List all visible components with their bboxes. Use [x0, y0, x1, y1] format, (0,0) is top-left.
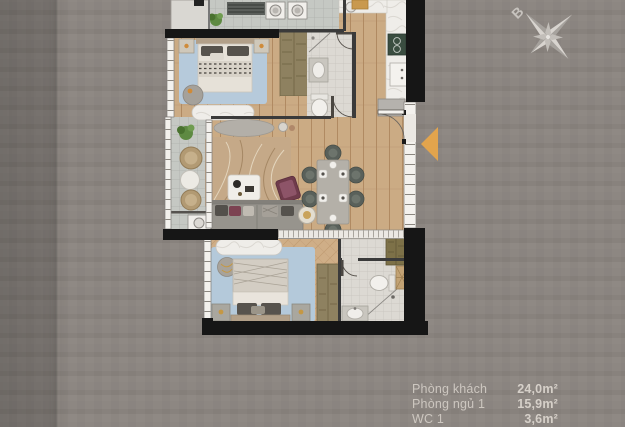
- hatch-wall: [277, 230, 405, 239]
- bed-1: [196, 38, 254, 92]
- coffee-table: [228, 175, 260, 200]
- scene-background: B Phòng khách 24,0m² Phòng ngủ 1 15,9m² …: [0, 0, 625, 420]
- legend-room-area: 15,9m²: [517, 397, 558, 412]
- area-legend: Phòng khách 24,0m² Phòng ngủ 1 15,9m² WC…: [412, 382, 558, 427]
- balcony-divider: [171, 211, 208, 214]
- legend-row: Phòng khách 24,0m²: [412, 382, 558, 397]
- bench-bedroom-2: [216, 239, 282, 255]
- runner-rug: [214, 120, 274, 137]
- pouf: [183, 85, 203, 105]
- appliance-panel: [390, 63, 407, 86]
- floor-plan-canvas: B: [0, 0, 625, 420]
- bedroom-2: [211, 239, 315, 323]
- ac-unit: [194, 0, 204, 6]
- compass-north-label: B: [508, 3, 526, 21]
- bedroom-1-hall-floor: [280, 96, 308, 118]
- legend-room-label: Phòng khách: [412, 382, 487, 397]
- balcony-table: [181, 171, 200, 190]
- entrance-door-leaf: [378, 110, 404, 114]
- decor: [289, 125, 295, 131]
- sofa: [211, 200, 303, 232]
- compass-icon: B: [508, 0, 593, 75]
- legend-room-label: Phòng ngủ 1: [412, 397, 485, 412]
- floor-plan: [163, 0, 428, 335]
- legend-room-area: 24,0m²: [517, 382, 558, 397]
- toilet-1: [312, 99, 328, 117]
- toilet-2: [370, 276, 388, 291]
- legend-row: Phòng ngủ 1 15,9m²: [412, 397, 558, 412]
- decor: [279, 123, 288, 132]
- entrance-arrow-icon: [421, 127, 438, 161]
- shoe-cabinet: [352, 0, 368, 9]
- entrance-opening: [404, 114, 416, 142]
